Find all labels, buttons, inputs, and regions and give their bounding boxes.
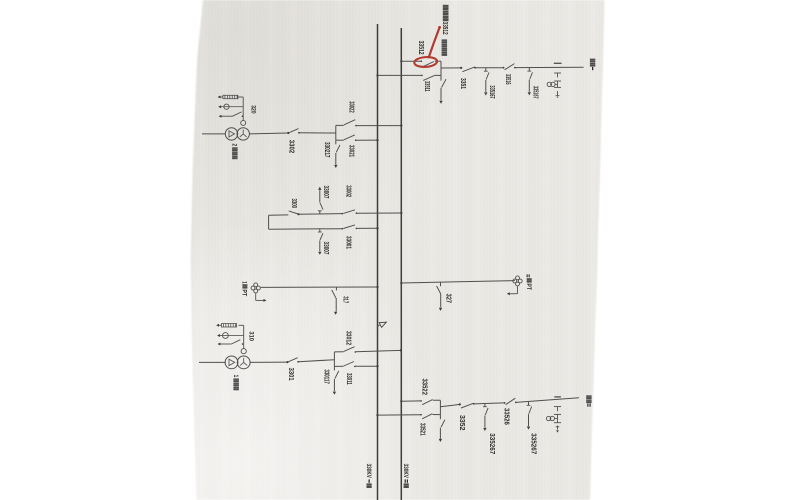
svg-text:3301: 3301 [287,368,294,381]
svg-text:PT: PT [241,289,248,296]
svg-text:33512: 33512 [417,41,424,55]
svg-text:335267: 335267 [530,433,537,454]
svg-text:33012: 33012 [345,331,352,345]
svg-text:3302: 3302 [288,140,295,153]
svg-text:PT: PT [525,283,532,290]
svg-text:33001: 33001 [345,236,352,249]
svg-text:320: 320 [249,105,256,114]
svg-text:335167: 335167 [532,86,539,99]
svg-text:33522: 33522 [420,379,427,396]
svg-text:33521: 33521 [419,423,426,436]
svg-text:330KV: 330KV [365,464,372,479]
svg-text:310: 310 [248,331,255,341]
svg-text:33011: 33011 [345,373,352,385]
svg-text:33516: 33516 [504,74,511,84]
svg-text:33021: 33021 [348,145,355,157]
svg-text:335167: 335167 [488,85,495,98]
svg-text:33022: 33022 [348,101,355,112]
svg-text:335267: 335267 [488,433,495,454]
svg-text:317: 317 [342,296,349,303]
svg-text:3351: 3351 [459,78,466,89]
svg-text:33526: 33526 [503,408,510,425]
svg-text:1: 1 [241,281,248,284]
svg-text:33511: 33511 [423,81,430,92]
svg-text:3300: 3300 [290,199,297,209]
svg-text:2: 2 [231,144,238,147]
svg-text:330117: 330117 [323,369,330,384]
svg-text:33007: 33007 [322,186,329,199]
svg-text:330KV: 330KV [402,464,409,479]
svg-text:3352: 3352 [458,415,465,431]
svg-text:33512: 33512 [441,22,448,35]
svg-text:327: 327 [445,294,452,304]
svg-text:33007: 33007 [322,242,329,255]
svg-text:330217: 330217 [323,142,330,158]
svg-text:33002: 33002 [345,185,352,197]
svg-text:1: 1 [232,375,239,378]
